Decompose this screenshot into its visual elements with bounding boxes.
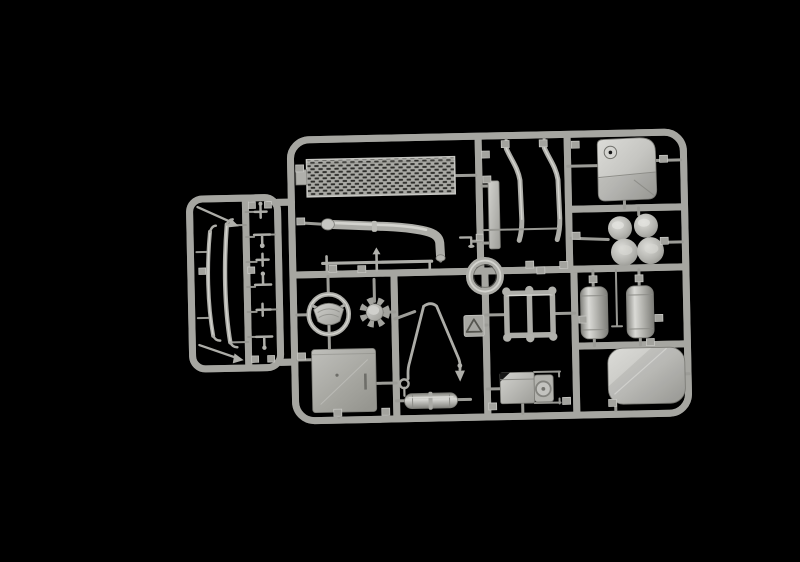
part-gear-hub: Toothed hub / gear wheel	[363, 301, 386, 324]
part-seat-cushions: Two contoured seat cushions	[608, 213, 665, 266]
part-radiator-side-panel: Narrow flat side panel	[488, 181, 500, 249]
part-tow-frame: A-shaped tow drawbar	[398, 303, 465, 396]
fitting-ball	[258, 202, 262, 206]
fitting-ball	[260, 243, 265, 248]
bracket-foot	[468, 245, 474, 248]
muffler-clamp	[428, 392, 432, 410]
side-sprue-runners	[245, 200, 294, 365]
pipe-tip	[436, 255, 445, 262]
muffler-highlight	[408, 397, 453, 398]
sprue-photo: Side sprue frame Thin diagonal rod (top)…	[40, 16, 800, 546]
part-steering-wheel: Steering wheel with horn pad	[308, 294, 349, 335]
part-pipe-bracket: Small L-bracket	[460, 237, 474, 248]
part-muffler: Small muffler cylinder	[404, 391, 457, 410]
main-sprue: Main sprue frame Perforated grille / wal…	[290, 132, 690, 421]
part-leaf-springs: Two leaf springs	[207, 219, 238, 348]
rod-arrowhead	[233, 353, 244, 363]
pipe-joint-ring	[372, 221, 377, 232]
part-floor-panel: Large flat floor panel	[311, 348, 376, 412]
sprue-group: Side sprue frame Thin diagonal rod (top)…	[188, 132, 690, 423]
pipe-flared-end	[321, 219, 334, 230]
fitting-ball	[261, 271, 265, 275]
part-antenna-rod-top: Thin diagonal rod (top)	[197, 206, 238, 228]
part-small-fittings: Column of small fittings	[253, 202, 272, 351]
tie-bar-cap	[372, 247, 380, 254]
photo-canvas: Product photograph of an injection-mould…	[40, 16, 800, 546]
part-tie-bar: Thin tie bar with stubs	[322, 246, 431, 271]
part-fuel-tank: Fuel tank with filler cap	[597, 137, 657, 201]
drawbar-spade-tip	[455, 370, 465, 381]
part-warning-triangle: Warning triangle plate	[464, 315, 484, 336]
side-sprue: Side sprue frame Thin diagonal rod (top)…	[189, 197, 295, 369]
part-battery-box: Battery box with round cap and rods	[500, 372, 561, 405]
part-walkway-grille: Perforated grille / walkway panel	[295, 157, 455, 197]
floor-panel-slot	[364, 374, 367, 390]
fitting-ball	[262, 345, 266, 349]
part-roof-panel: Rounded roof panel	[608, 347, 686, 405]
part-roof-rack-frame: Rectangular rack frame with round feet	[502, 285, 558, 343]
part-exhaust-pipe: Curved exhaust pipe with flared tip	[321, 216, 445, 263]
